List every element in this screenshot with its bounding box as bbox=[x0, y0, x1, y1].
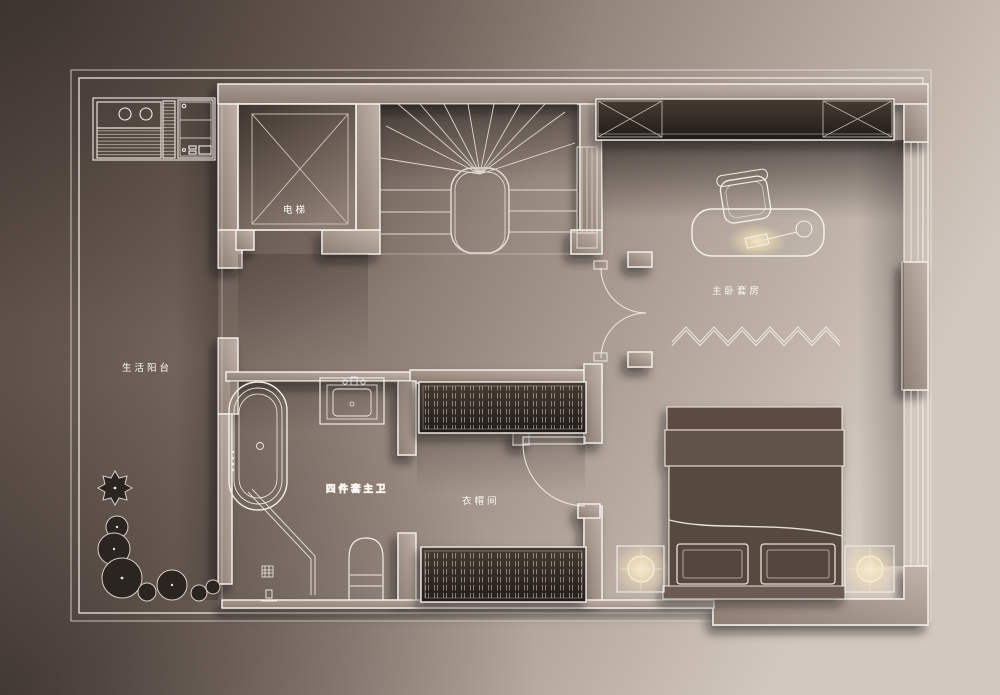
shade-hall bbox=[238, 254, 368, 364]
wall-right-pier bbox=[902, 262, 928, 390]
bed-platform bbox=[663, 586, 845, 599]
floor-plan: 生活阳台 电梯 bbox=[0, 0, 1000, 695]
wall-cloakroom-east-top bbox=[584, 364, 602, 443]
wall-left-low bbox=[218, 414, 232, 584]
wardrobe-bottom-hatch bbox=[425, 551, 582, 598]
plant-6 bbox=[191, 585, 207, 601]
desk bbox=[692, 209, 824, 256]
cloakroom-door-leaf bbox=[523, 437, 585, 444]
wall-divider-bottom bbox=[398, 533, 416, 603]
plant-5-dot bbox=[171, 584, 173, 586]
wall-elevator-left bbox=[218, 104, 238, 230]
plant-7 bbox=[206, 580, 220, 594]
wardrobe-top-hatch bbox=[423, 386, 582, 429]
nightstand-right bbox=[842, 543, 898, 595]
plant-1-dot bbox=[116, 526, 118, 528]
wall-stub-b bbox=[236, 230, 254, 250]
wall-cloakroom-top bbox=[410, 370, 602, 383]
elevator: 电梯 bbox=[238, 104, 356, 230]
shade-balcony-right bbox=[176, 104, 218, 600]
nightstand-left bbox=[613, 543, 669, 595]
door-jamb-top bbox=[628, 252, 652, 267]
bathroom-label: 四件套主卫 bbox=[326, 483, 389, 495]
bedroom-closet-strip bbox=[596, 99, 894, 140]
elevator-label: 电梯 bbox=[283, 204, 308, 216]
appliance-louver bbox=[97, 128, 161, 158]
door-jamb-bottom bbox=[628, 352, 652, 367]
cloakroom-label: 衣帽间 bbox=[462, 495, 500, 507]
plant-2-dot bbox=[113, 548, 115, 550]
plant-3-dot bbox=[121, 577, 124, 580]
counter-strip bbox=[163, 101, 175, 158]
bed-band bbox=[665, 430, 844, 466]
floor-plan-stage: 生活阳台 电梯 bbox=[0, 0, 1000, 695]
plant-4 bbox=[138, 583, 156, 601]
wall-cloakroom-east-bottom bbox=[584, 506, 602, 603]
wall-elevator-right bbox=[356, 104, 380, 230]
bed-head-canopy bbox=[667, 407, 842, 430]
balcony-label: 生活阳台 bbox=[122, 362, 172, 374]
wall-stub-c bbox=[322, 230, 380, 254]
wall-right-top bbox=[904, 104, 928, 142]
bed bbox=[663, 407, 845, 599]
plant-bush-dot bbox=[114, 487, 117, 490]
master-suite-label: 主卧套房 bbox=[712, 285, 762, 297]
shade-bedroom-right bbox=[858, 142, 904, 566]
